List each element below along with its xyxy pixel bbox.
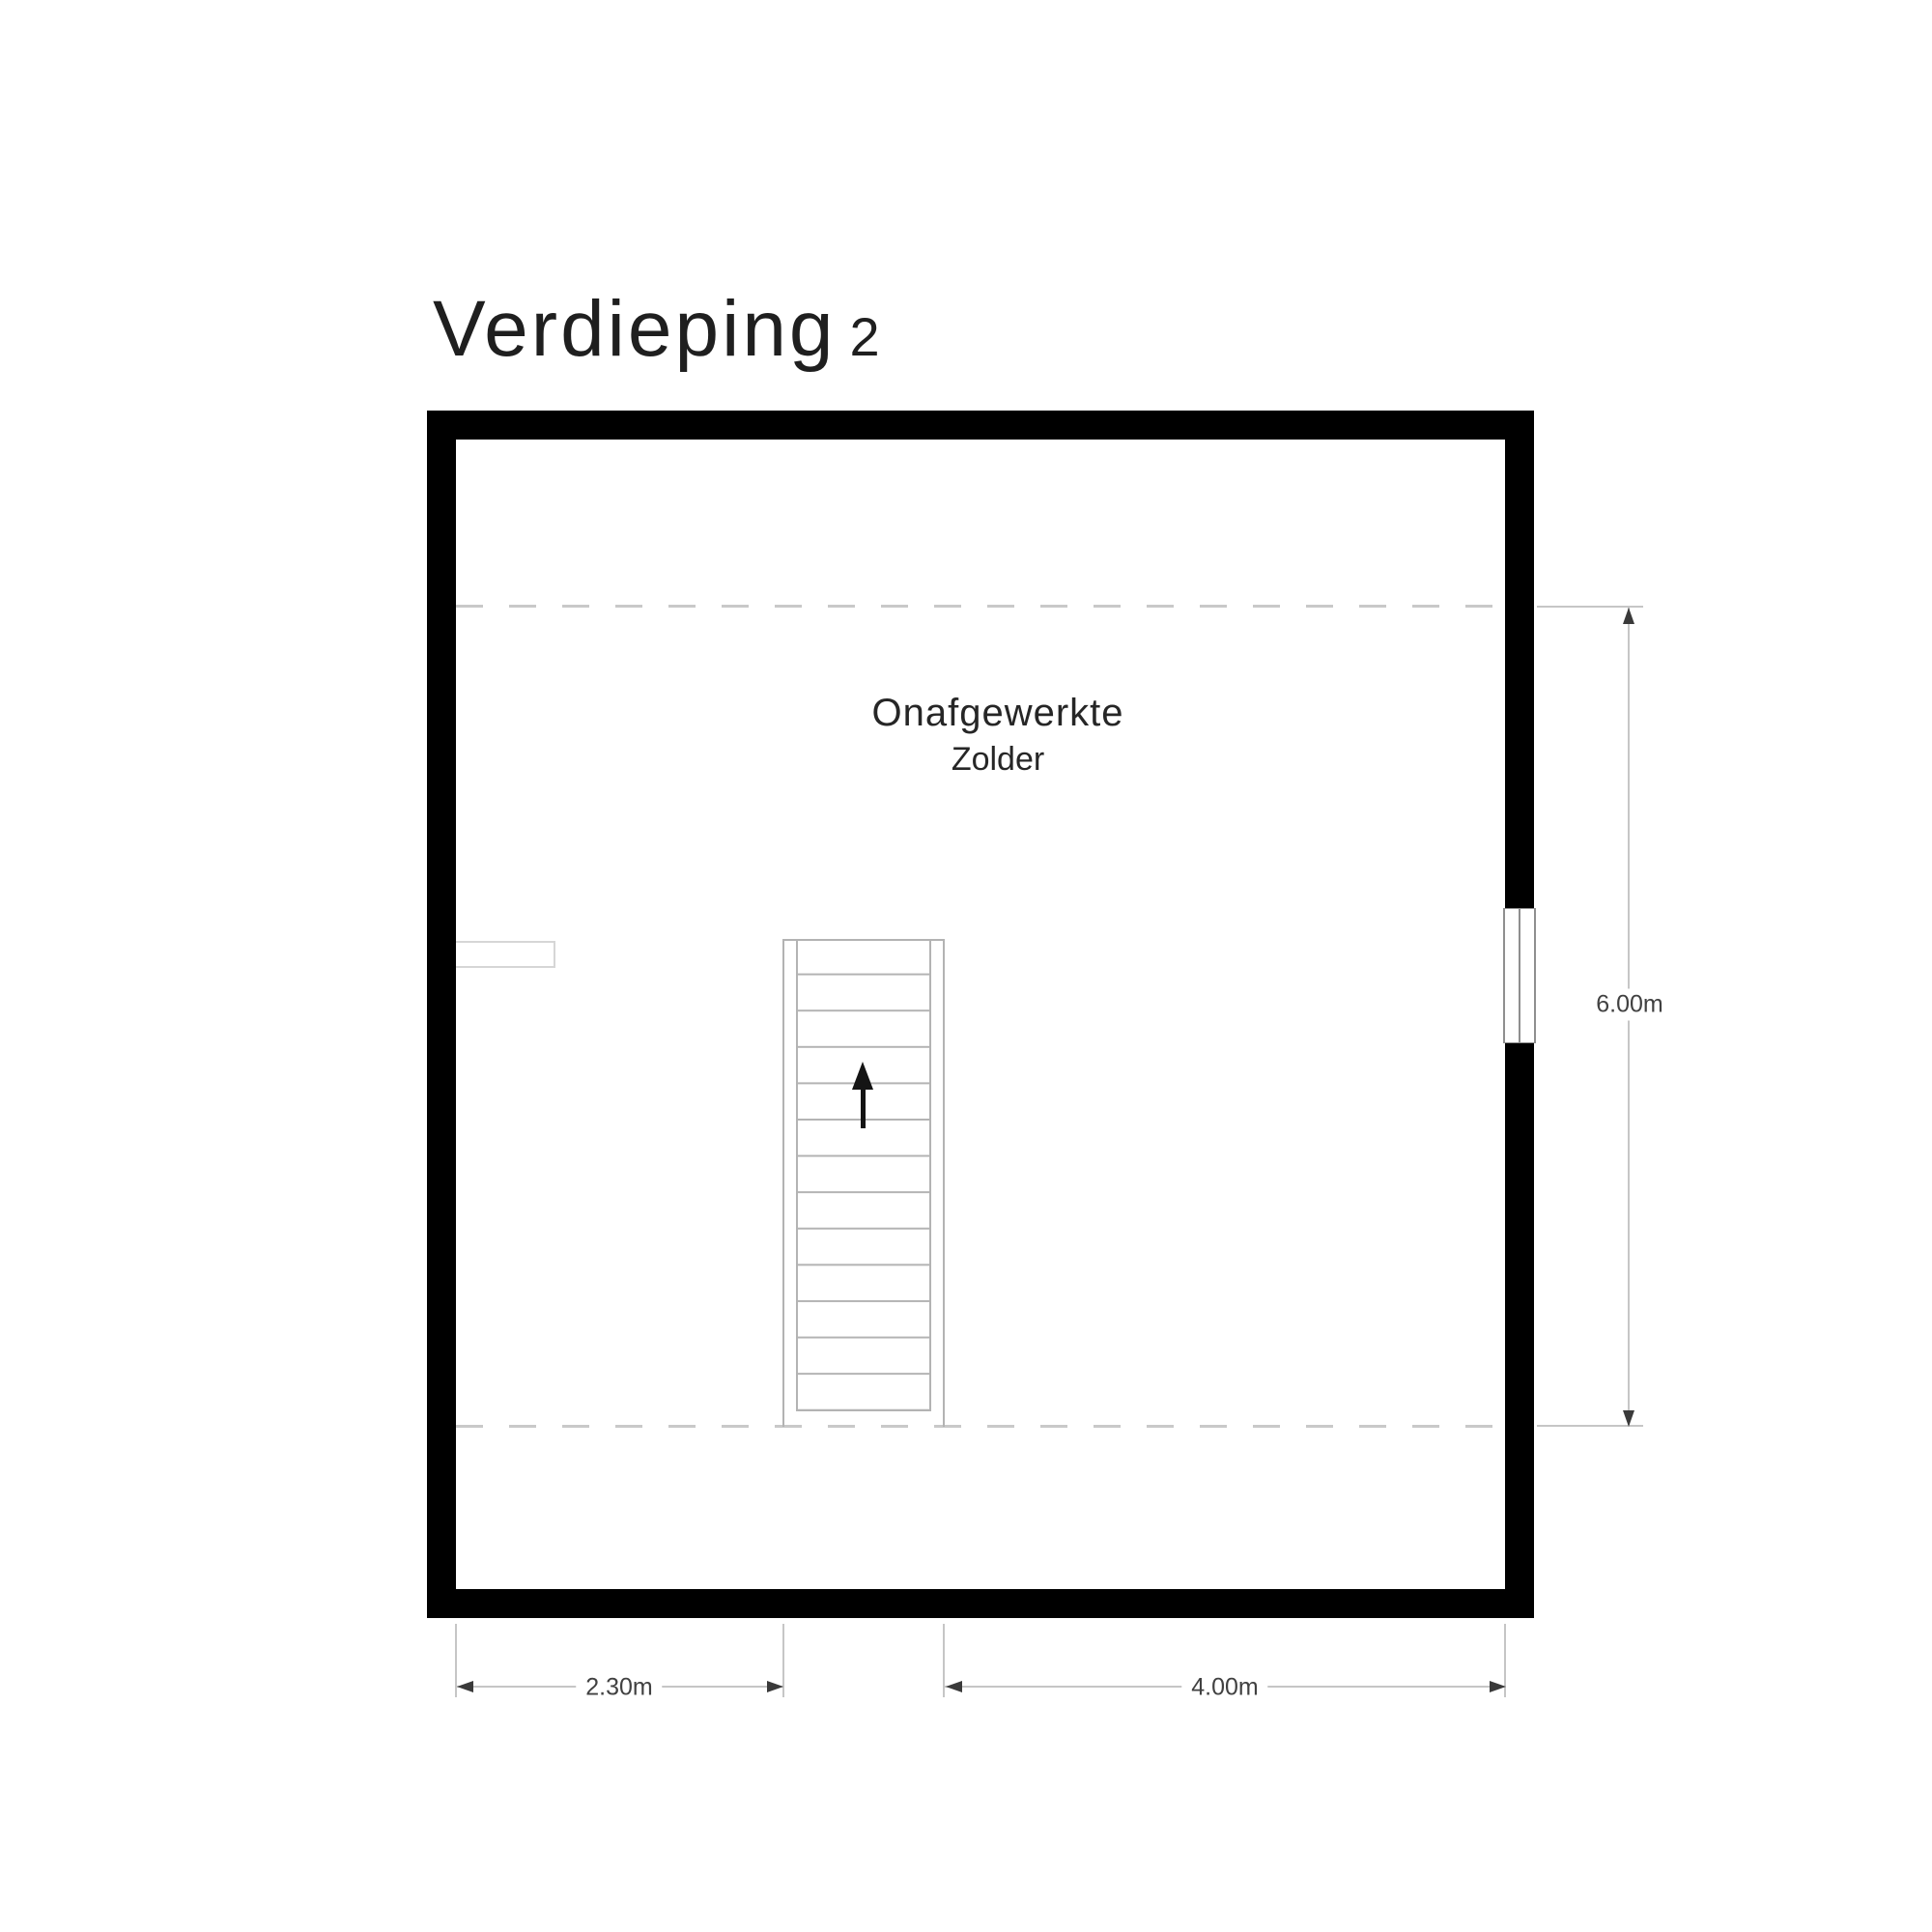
dimension-arrow-up-icon	[1623, 608, 1634, 624]
room-name-line1: Onafgewerkte	[850, 690, 1146, 736]
headroom-dashed-line-bottom	[456, 1425, 1505, 1428]
room-label: Onafgewerkte Zolder	[850, 690, 1146, 780]
floor-title: Verdieping2	[433, 290, 883, 369]
dimension-arrow-right-icon	[1490, 1681, 1506, 1692]
floor-title-text: Verdieping	[433, 285, 837, 373]
floor-plan-page: Verdieping2 Onafgewerkte Zolder 2.30m 4.…	[0, 0, 1932, 1932]
staircase-right-side	[943, 939, 945, 1427]
staircase-treads	[796, 939, 931, 1411]
outer-walls	[427, 411, 1534, 1618]
dimension-label-bottom-right: 4.00m	[1181, 1672, 1267, 1704]
stairs-up-arrow-icon	[861, 1088, 866, 1128]
headroom-dashed-line-top	[456, 605, 1505, 608]
right-wall-window	[1503, 908, 1536, 1043]
dimension-label-bottom-left: 2.30m	[576, 1672, 662, 1704]
dimension-arrow-down-icon	[1623, 1410, 1634, 1427]
room-name-line2: Zolder	[850, 740, 1146, 780]
dimension-arrow-right-icon	[767, 1681, 783, 1692]
left-wall-notch	[456, 941, 555, 968]
floor-title-number: 2	[850, 306, 883, 367]
window-centerline	[1519, 909, 1520, 1042]
stairs-up-arrow-head-icon	[852, 1062, 873, 1090]
staircase-left-side	[782, 939, 784, 1427]
dimension-label-right: 6.00m	[1586, 989, 1672, 1021]
dimension-arrow-left-icon	[946, 1681, 962, 1692]
dimension-arrow-left-icon	[457, 1681, 473, 1692]
